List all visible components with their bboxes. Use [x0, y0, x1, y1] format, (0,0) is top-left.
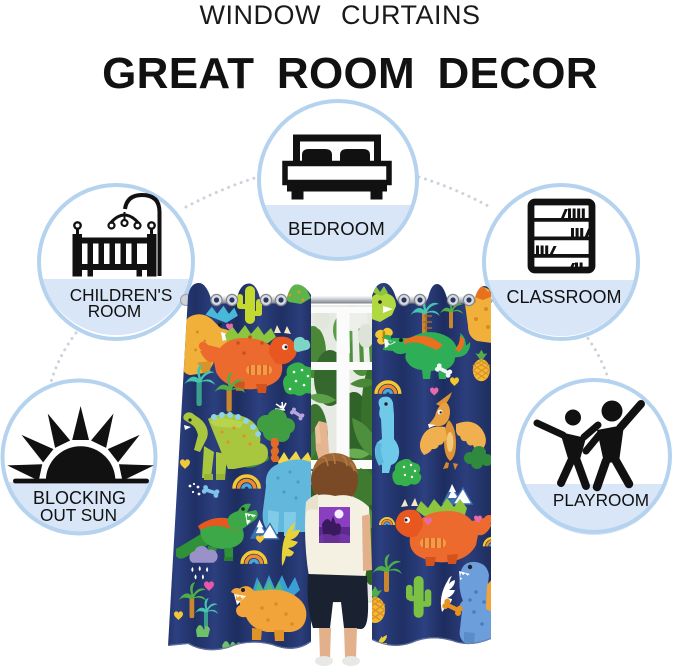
svg-text:CLASSROOM: CLASSROOM: [506, 287, 621, 307]
svg-text:WINDOW CURTAINS: WINDOW CURTAINS: [200, 0, 481, 30]
svg-text:OUT SUN: OUT SUN: [40, 505, 117, 525]
svg-text:GREAT ROOM DECOR: GREAT ROOM DECOR: [102, 49, 598, 98]
svg-text:ROOM: ROOM: [88, 301, 141, 321]
svg-text:BEDROOM: BEDROOM: [288, 218, 385, 239]
svg-text:PLAYROOM: PLAYROOM: [553, 490, 649, 510]
